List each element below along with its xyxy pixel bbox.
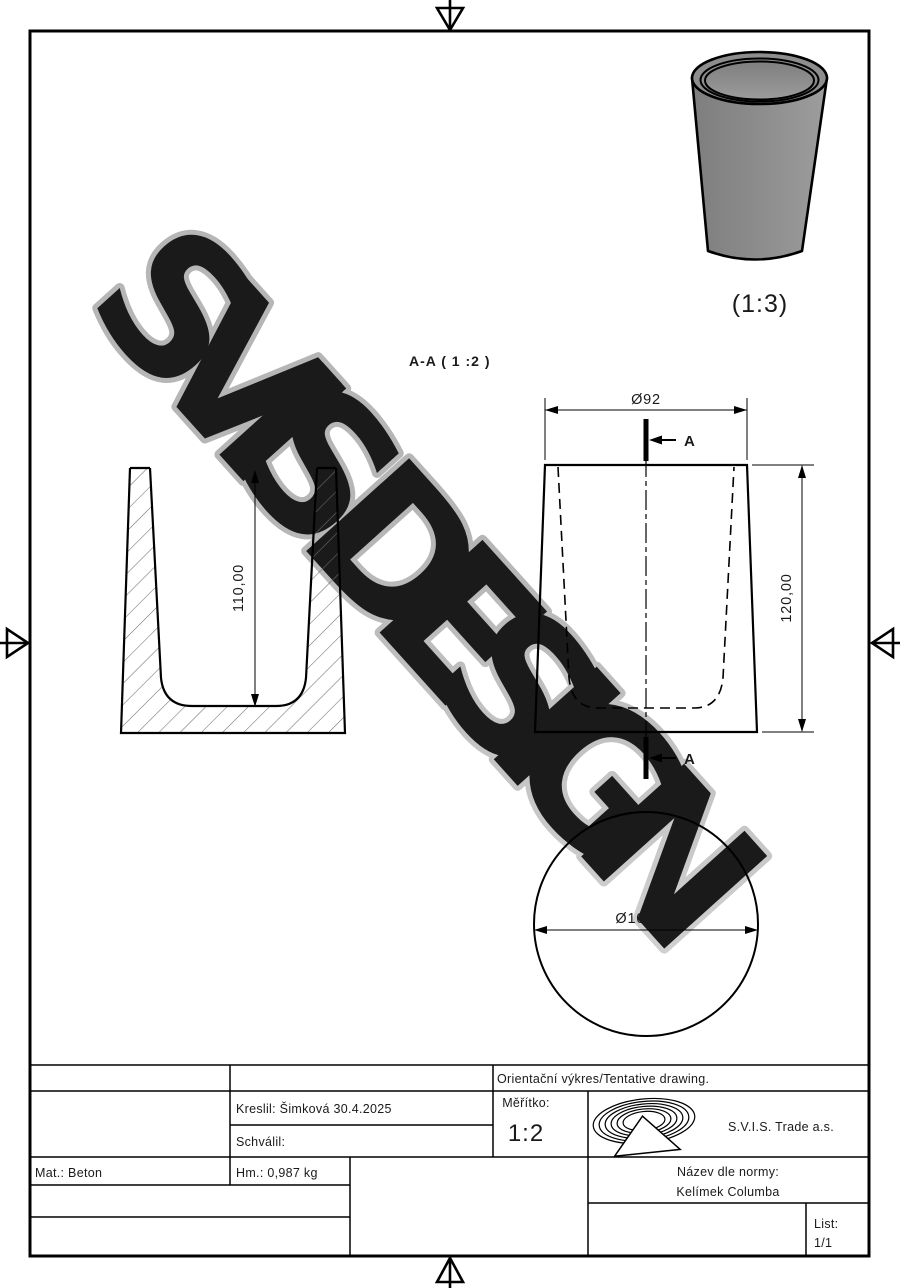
view3d-scale-label: (1:3) [732,290,788,318]
center-mark-bottom [437,1258,463,1288]
watermark-text: SVIS DESIGN [49,184,796,979]
name-value: Kelímek Columba [676,1185,779,1199]
drawn-by: Kreslil: Šimková 30.4.2025 [236,1101,392,1116]
center-mark-right [872,629,900,657]
title-block-grid [30,1065,869,1255]
title-block-text: Orientační výkres/Tentative drawing. Kre… [35,1072,838,1250]
cup-3d-view [692,52,827,260]
name-label: Název dle normy: [677,1165,779,1179]
section-title: A-A ( 1 :2 ) [409,353,490,369]
dim-inner-depth: 110,00 [231,564,247,612]
mass-value: Hm.: 0,987 kg [236,1166,318,1180]
center-mark-left [0,629,28,657]
material-value: Mat.: Beton [35,1166,102,1180]
center-mark-top [437,0,463,30]
sheet-value: 1/1 [814,1236,832,1250]
company-logo [591,1094,698,1158]
scale-label: Měřítko: [502,1096,550,1110]
dim-base-diameter: Ø100,00 [615,911,676,927]
dim-top-diameter: Ø92 [631,392,661,408]
company-name: S.V.I.S. Trade a.s. [728,1120,834,1134]
dim-height: 120,00 [779,573,795,622]
sheet-label: List: [814,1217,838,1231]
section-arrow-label-bottom: A [684,751,695,768]
tentative-note: Orientační výkres/Tentative drawing. [497,1072,709,1086]
drawing-canvas: SVIS DESIGN (1:3) A-A ( 1 :2 ) 110,0 [0,0,900,1288]
scale-value: 1:2 [508,1120,544,1147]
approved-by: Schválil: [236,1135,285,1149]
section-arrow-label-top: A [684,433,695,450]
drawing-sheet: SVIS DESIGN (1:3) A-A ( 1 :2 ) 110,0 [0,0,900,1288]
